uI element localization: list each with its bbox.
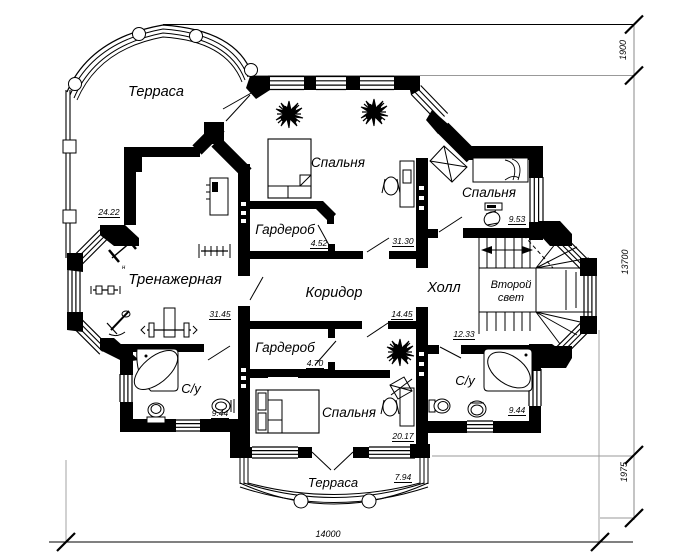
svg-text:31.30: 31.30 [392,236,414,246]
svg-text:20.17: 20.17 [391,431,414,441]
svg-text:9.44: 9.44 [212,408,229,418]
svg-text:Гардероб: Гардероб [255,340,315,355]
svg-text:Холл: Холл [426,280,460,296]
svg-text:12.33: 12.33 [453,329,475,339]
svg-text:Тренажерная: Тренажерная [128,271,222,288]
svg-text:13700: 13700 [620,249,630,274]
svg-text:1975: 1975 [619,461,629,482]
svg-text:14000: 14000 [315,529,340,539]
svg-text:4.70: 4.70 [307,358,324,368]
svg-text:С/у: С/у [181,381,202,396]
svg-text:Спальня: Спальня [322,405,376,420]
svg-text:Второй: Второй [491,279,532,291]
svg-text:Гардероб: Гардероб [255,222,315,237]
svg-text:Спальня: Спальня [462,185,516,200]
svg-text:4.52: 4.52 [311,238,328,248]
svg-text:Терраса: Терраса [308,475,358,490]
svg-text:9.53: 9.53 [509,214,526,224]
svg-text:Спальня: Спальня [311,155,365,170]
svg-text:7.94: 7.94 [395,472,412,482]
svg-text:1900: 1900 [618,40,628,60]
svg-text:24.22: 24.22 [97,207,120,217]
svg-text:9.44: 9.44 [509,405,526,415]
svg-text:31.45: 31.45 [209,309,231,319]
svg-text:14.45: 14.45 [391,309,413,319]
svg-text:Коридор: Коридор [306,285,363,301]
svg-text:свет: свет [498,292,524,304]
svg-text:С/у: С/у [455,373,476,388]
svg-text:Терраса: Терраса [128,84,184,100]
